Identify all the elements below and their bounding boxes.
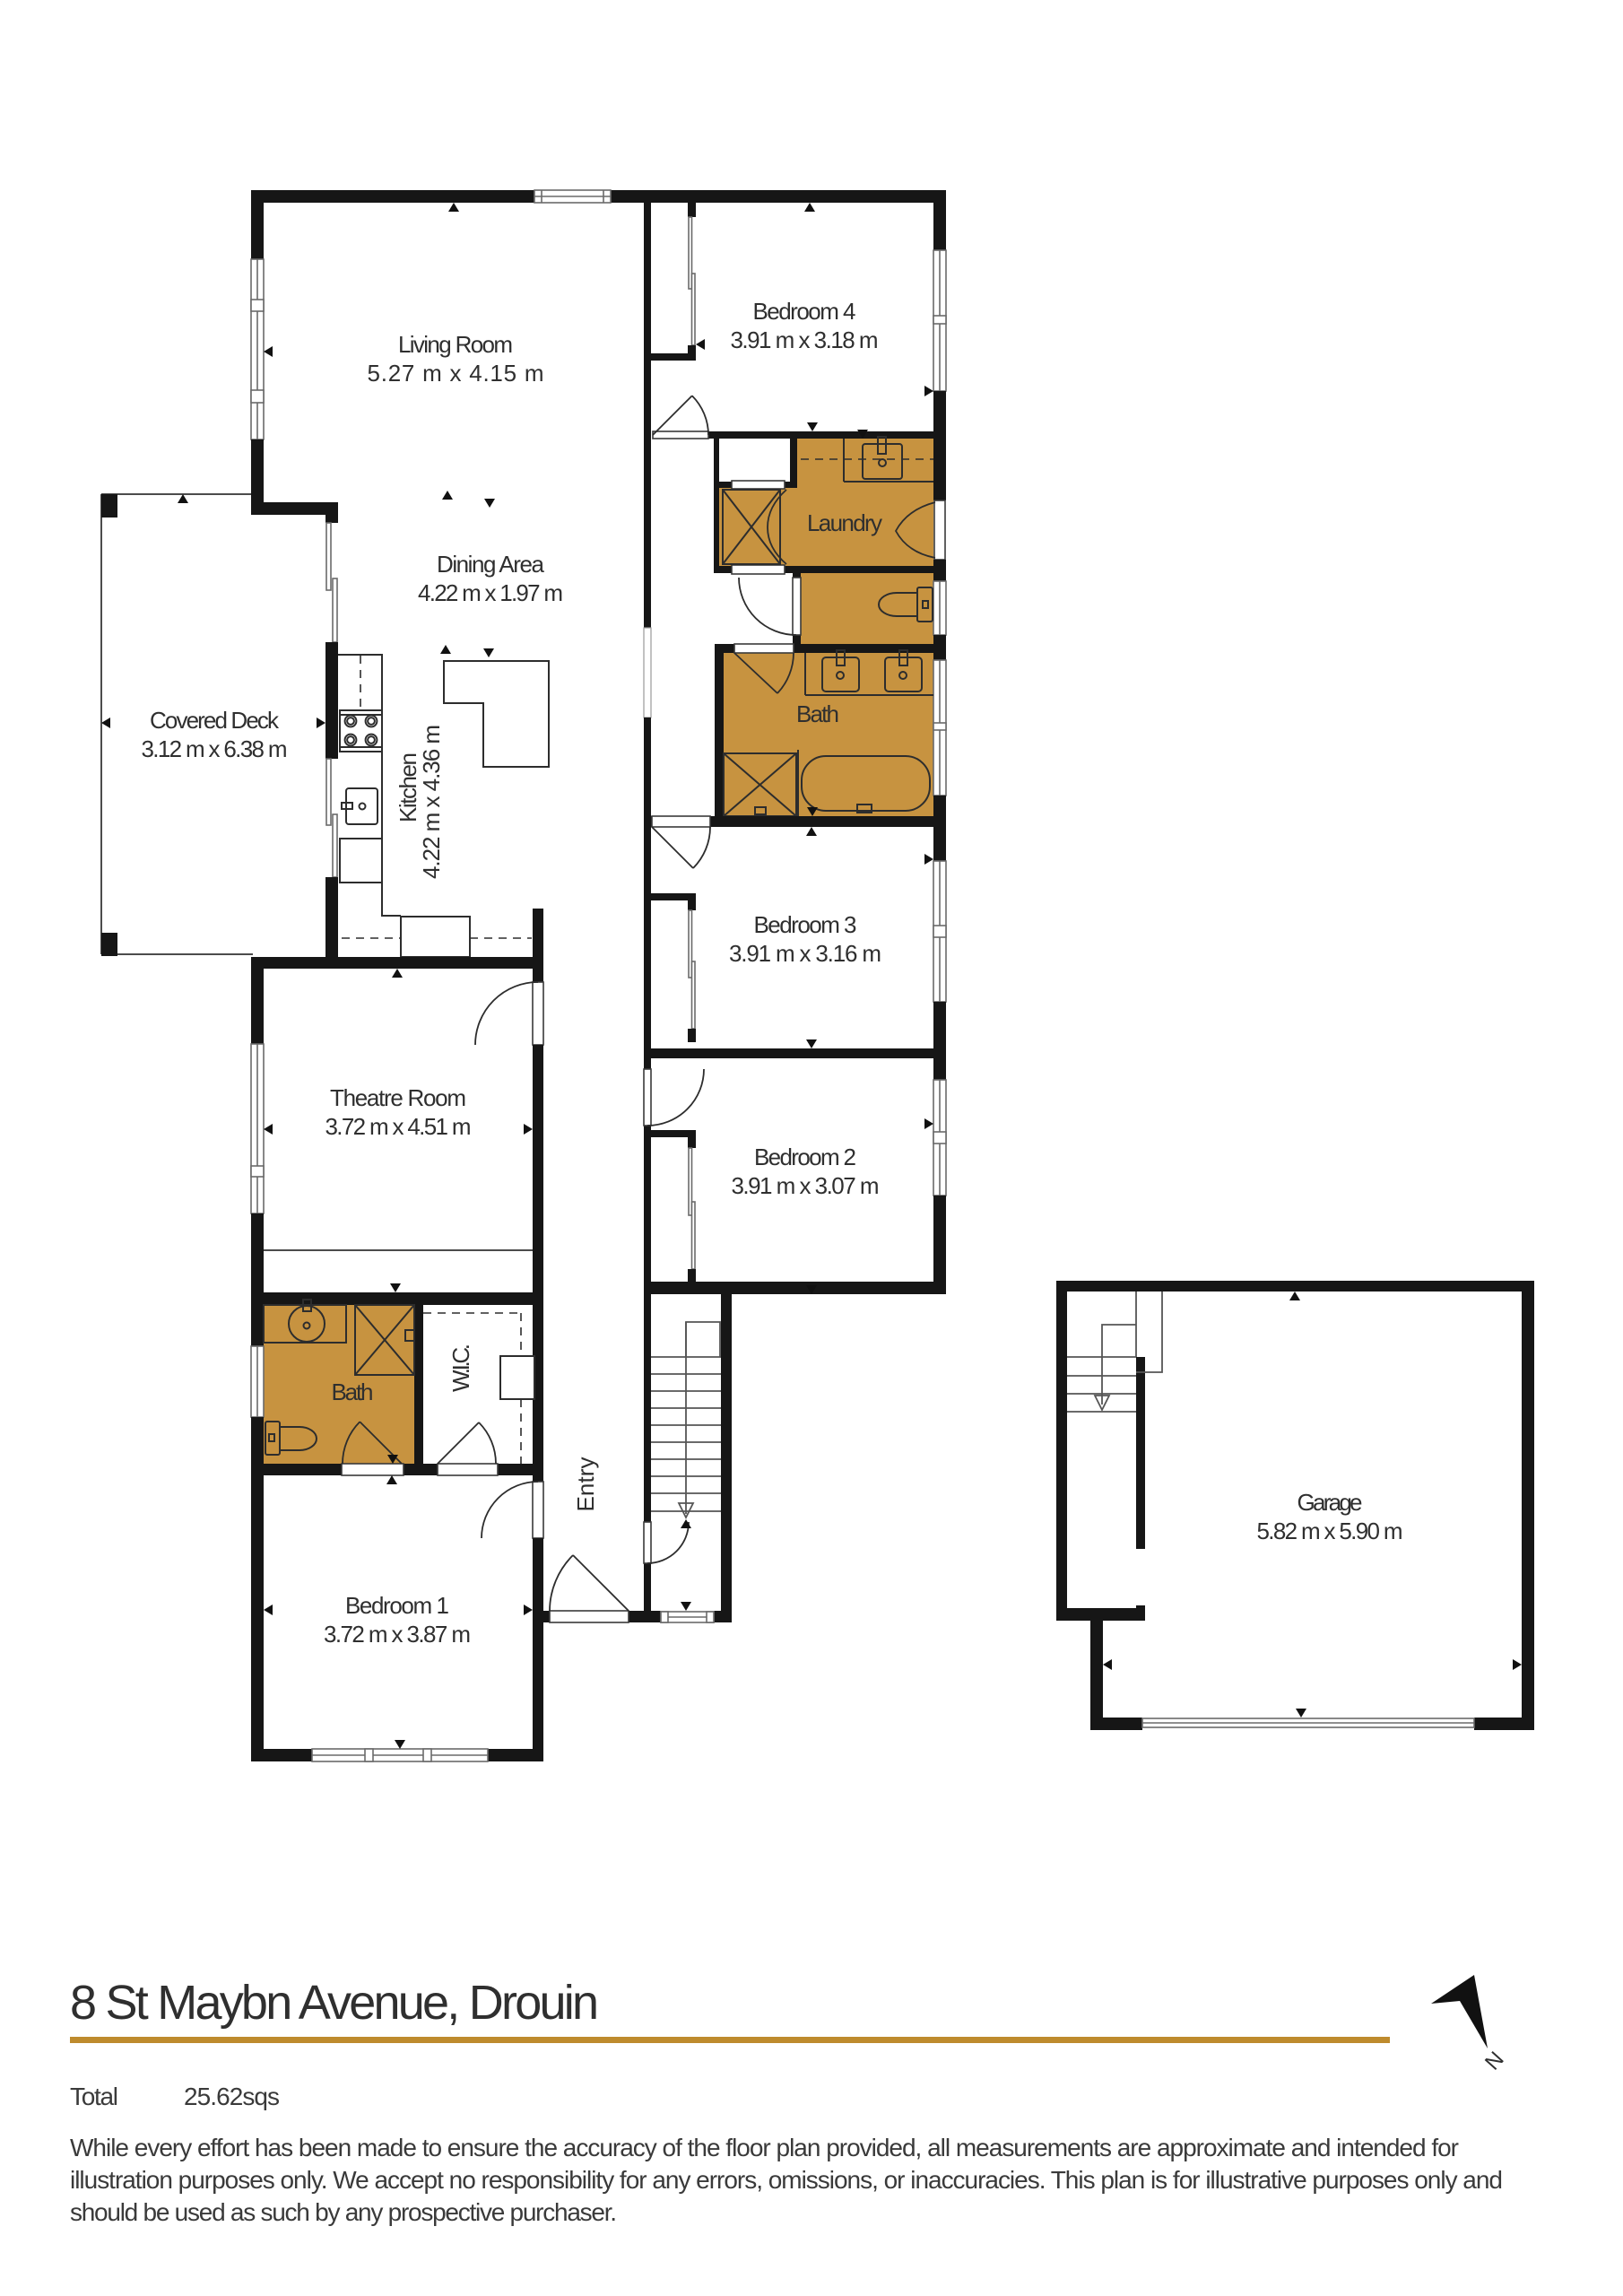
svg-text:Living Room: Living Room — [398, 331, 513, 358]
svg-text:Laundry: Laundry — [807, 509, 882, 536]
svg-text:Theatre Room: Theatre Room — [330, 1084, 466, 1111]
svg-text:Bedroom 2: Bedroom 2 — [754, 1144, 856, 1170]
svg-text:3.72 m x 3.87 m: 3.72 m x 3.87 m — [324, 1621, 471, 1648]
svg-text:5.27 m x 4.15 m: 5.27 m x 4.15 m — [368, 360, 544, 387]
svg-text:25.62sqs: 25.62sqs — [184, 2083, 280, 2110]
svg-text:Bath: Bath — [796, 700, 839, 727]
svg-text:W.I.C.: W.I.C. — [447, 1344, 474, 1392]
svg-text:Dining Area: Dining Area — [437, 551, 545, 578]
svg-text:3.91 m x 3.16 m: 3.91 m x 3.16 m — [729, 940, 881, 967]
svg-text:3.91 m x 3.18 m: 3.91 m x 3.18 m — [731, 326, 879, 353]
svg-text:4.22 m x 1.97 m: 4.22 m x 1.97 m — [418, 579, 563, 606]
svg-text:While every effort has been ma: While every effort has been made to ensu… — [70, 2134, 1459, 2161]
svg-text:3.12 m x 6.38 m: 3.12 m x 6.38 m — [142, 735, 288, 762]
svg-text:Garage: Garage — [1298, 1489, 1363, 1516]
svg-text:Covered Deck: Covered Deck — [150, 707, 280, 734]
svg-text:Bath: Bath — [332, 1378, 374, 1405]
svg-text:Bedroom 1: Bedroom 1 — [345, 1592, 449, 1619]
svg-text:3.72 m x 4.51 m: 3.72 m x 4.51 m — [325, 1113, 472, 1140]
svg-text:3.91 m x 3.07 m: 3.91 m x 3.07 m — [732, 1172, 880, 1199]
svg-text:Bedroom 3: Bedroom 3 — [754, 911, 857, 938]
svg-text:Entry: Entry — [572, 1457, 599, 1512]
svg-text:Total: Total — [70, 2083, 118, 2110]
svg-text:Bedroom 4: Bedroom 4 — [753, 298, 856, 325]
svg-text:4.22 m x 4.36 m: 4.22 m x 4.36 m — [418, 725, 445, 879]
svg-text:8 St Maybn Avenue, Drouin: 8 St Maybn Avenue, Drouin — [70, 1976, 599, 2030]
svg-text:illustration purposes only. We: illustration purposes only. We accept no… — [70, 2166, 1503, 2194]
svg-text:should be used as such by any: should be used as such by any prospectiv… — [70, 2198, 617, 2226]
svg-text:5.82 m x 5.90 m: 5.82 m x 5.90 m — [1257, 1518, 1403, 1544]
